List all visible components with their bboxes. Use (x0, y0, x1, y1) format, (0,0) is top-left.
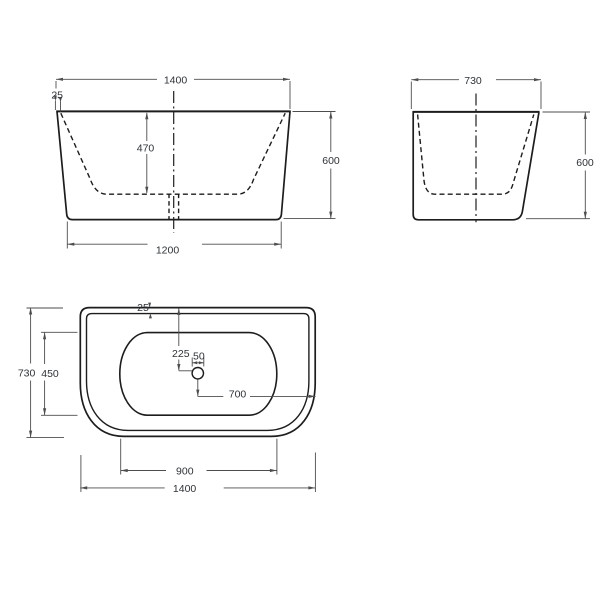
svg-text:25: 25 (137, 302, 149, 314)
svg-text:700: 700 (229, 389, 247, 401)
svg-text:225: 225 (172, 348, 190, 360)
svg-text:1200: 1200 (156, 244, 180, 256)
svg-text:900: 900 (176, 466, 194, 478)
svg-text:470: 470 (137, 143, 155, 155)
svg-text:1400: 1400 (173, 483, 197, 495)
svg-text:600: 600 (322, 155, 340, 167)
svg-text:450: 450 (41, 368, 59, 380)
svg-text:600: 600 (576, 157, 594, 169)
svg-text:25: 25 (51, 90, 63, 102)
svg-text:730: 730 (464, 75, 482, 87)
svg-text:1400: 1400 (164, 74, 188, 86)
svg-text:730: 730 (18, 367, 36, 379)
svg-text:50: 50 (193, 350, 205, 362)
